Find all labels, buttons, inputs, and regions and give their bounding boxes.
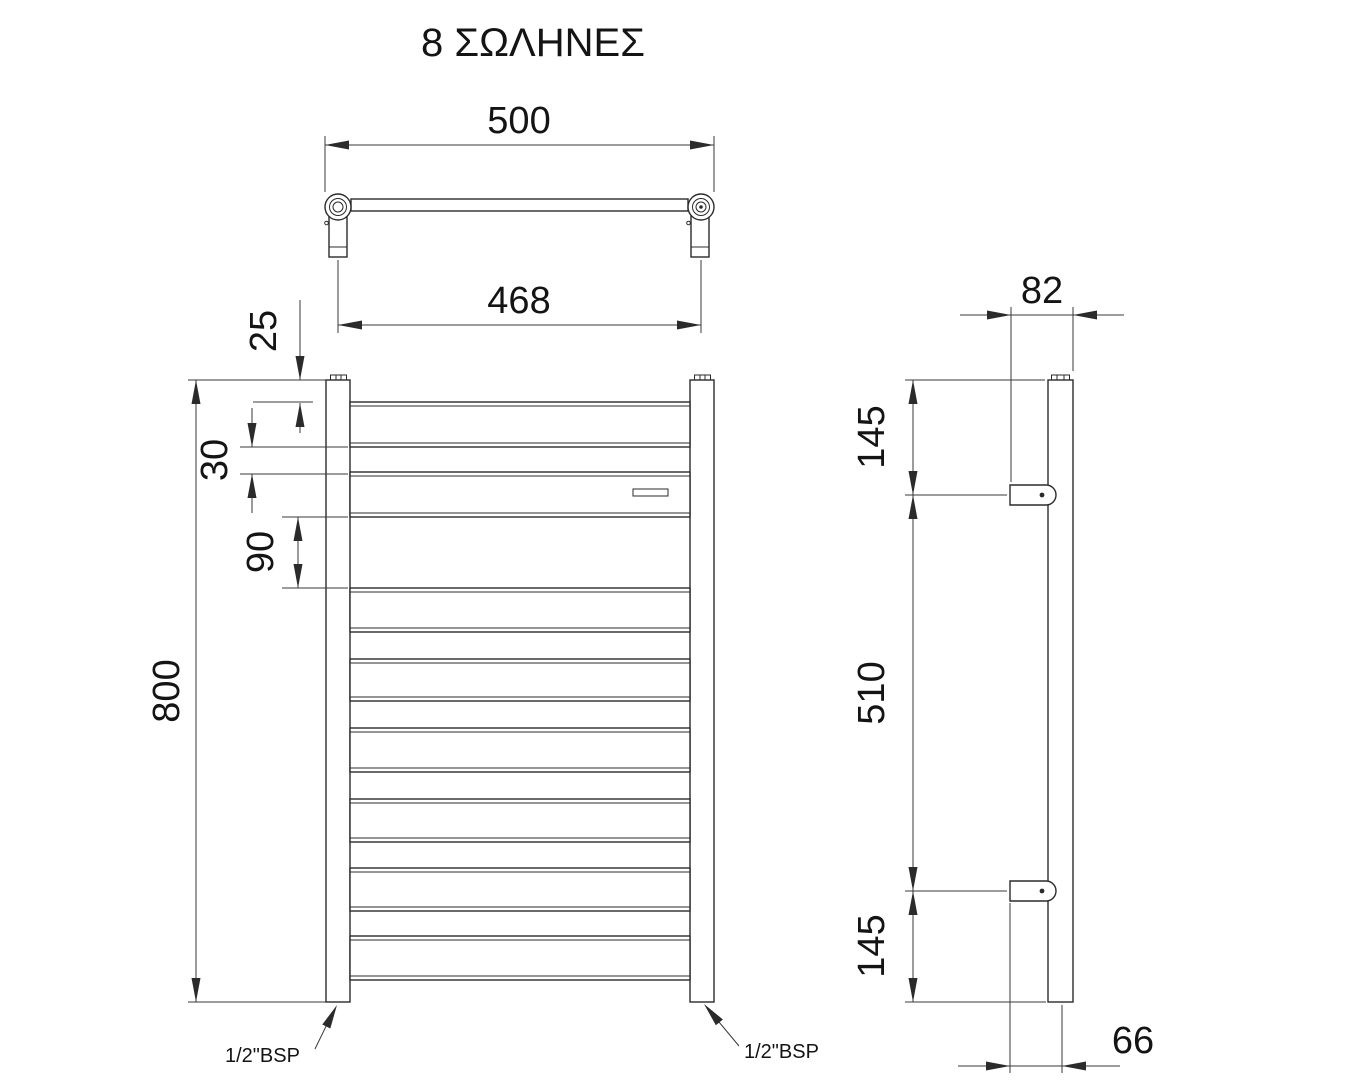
dim-group-gap-label: 90 — [240, 531, 282, 573]
center-dot — [699, 205, 703, 209]
tube-outline — [350, 402, 690, 447]
column-end-right — [688, 194, 714, 220]
dim-wall-to-pipe-label: 66 — [1112, 1020, 1154, 1062]
tube-rung-8 — [350, 936, 690, 980]
column-end-left — [325, 194, 351, 220]
tube-rung-1 — [350, 402, 690, 447]
top-view: 500 468 — [325, 100, 714, 333]
arrowhead-up — [909, 380, 918, 404]
arrowhead-left — [338, 321, 362, 330]
side-column — [1048, 380, 1073, 1002]
arrowhead-down — [909, 978, 918, 1002]
tube-outline — [350, 936, 690, 980]
arrowhead-down — [909, 867, 918, 891]
right-column-cap — [695, 375, 711, 380]
arrowhead-up — [248, 474, 257, 498]
dim-fixing-centers-label: 468 — [487, 280, 550, 322]
arrowhead-up — [192, 380, 201, 404]
dim-tube-spacing-label: 30 — [194, 439, 236, 481]
top-view-bracket-left — [325, 215, 347, 257]
cap — [331, 375, 347, 380]
connection-left-label: 1/2"BSP — [225, 1045, 300, 1067]
leader-arrowhead — [322, 1005, 337, 1029]
tube-outline — [350, 799, 690, 842]
tube-outline — [350, 868, 690, 911]
side-bracket-upper — [1010, 485, 1056, 505]
dim-overall-height-label: 800 — [146, 659, 188, 722]
cap — [695, 375, 711, 380]
arrowhead-down — [296, 356, 305, 380]
arrowhead-right — [987, 311, 1011, 320]
arrowhead-right — [690, 141, 714, 150]
arrowhead-right — [677, 321, 701, 330]
arrowhead-up — [296, 403, 305, 427]
tube-rung-4 — [350, 659, 690, 701]
bracket-screw — [1040, 493, 1045, 498]
arrowhead-left — [1062, 1062, 1086, 1071]
side-column-cap — [1052, 375, 1070, 380]
tube-rung-6 — [350, 799, 690, 842]
arrowhead-down — [294, 564, 303, 588]
drawing-title: 8 ΣΩΛΗΝΕΣ — [421, 21, 645, 65]
tube-outline — [350, 659, 690, 701]
tube-rung-7 — [350, 868, 690, 911]
dim-depth-label: 82 — [1021, 270, 1063, 312]
cap — [1052, 375, 1070, 380]
arrowhead-down — [909, 471, 918, 495]
arrowhead-up — [294, 517, 303, 541]
tube-outline — [350, 472, 690, 517]
outer-ring — [325, 194, 351, 220]
bracket-screw — [325, 221, 329, 225]
side-bracket-lower — [1010, 881, 1056, 901]
dim-overall-width-label: 500 — [487, 100, 550, 142]
bracket-body — [1010, 881, 1056, 901]
tube-rungs — [350, 402, 690, 980]
tube-rung-2 — [350, 472, 690, 517]
dim-top-offset-label: 25 — [243, 310, 285, 352]
arrowhead-up — [909, 891, 918, 915]
bracket-stem — [329, 215, 347, 257]
left-column — [326, 380, 350, 1002]
connection-right-label: 1/2"BSP — [744, 1041, 819, 1063]
left-column-cap — [331, 375, 347, 380]
tube-outline — [350, 728, 690, 772]
leader-arrowhead — [704, 1004, 723, 1025]
bracket-screw — [1040, 889, 1045, 894]
top-view-bracket-right — [687, 215, 709, 257]
arrowhead-left — [325, 141, 349, 150]
arrowhead-down — [192, 978, 201, 1002]
bracket-stem — [691, 215, 709, 257]
arrowhead-left — [1073, 311, 1097, 320]
tube-rung-3 — [350, 588, 690, 632]
dim-bracket-centers-label: 510 — [851, 661, 893, 724]
dim-bracket-to-bottom-label: 145 — [851, 914, 893, 977]
connection-callout-left: 1/2"BSP — [225, 1005, 337, 1067]
side-view: 82 145 510 145 66 — [851, 270, 1154, 1073]
tube-outline — [350, 588, 690, 632]
arrowhead-down — [248, 423, 257, 447]
front-view: 800 25 30 90 1/2"BSP 1/2"BSP — [146, 300, 819, 1067]
arrowhead-up — [909, 495, 918, 519]
dim-top-to-bracket-label: 145 — [851, 405, 893, 468]
right-column — [690, 380, 714, 1002]
top-tube-plan — [351, 199, 688, 211]
connection-callout-right: 1/2"BSP — [704, 1004, 819, 1063]
towel-rail-drawing: 8 ΣΩΛΗΝΕΣ 500 — [0, 0, 1350, 1082]
bracket-screw — [687, 221, 691, 225]
tube-rung-5 — [350, 728, 690, 772]
bracket-body — [1010, 485, 1056, 505]
arrowhead-right — [986, 1062, 1010, 1071]
technical-drawing-page: 8 ΣΩΛΗΝΕΣ 500 — [0, 0, 1350, 1082]
